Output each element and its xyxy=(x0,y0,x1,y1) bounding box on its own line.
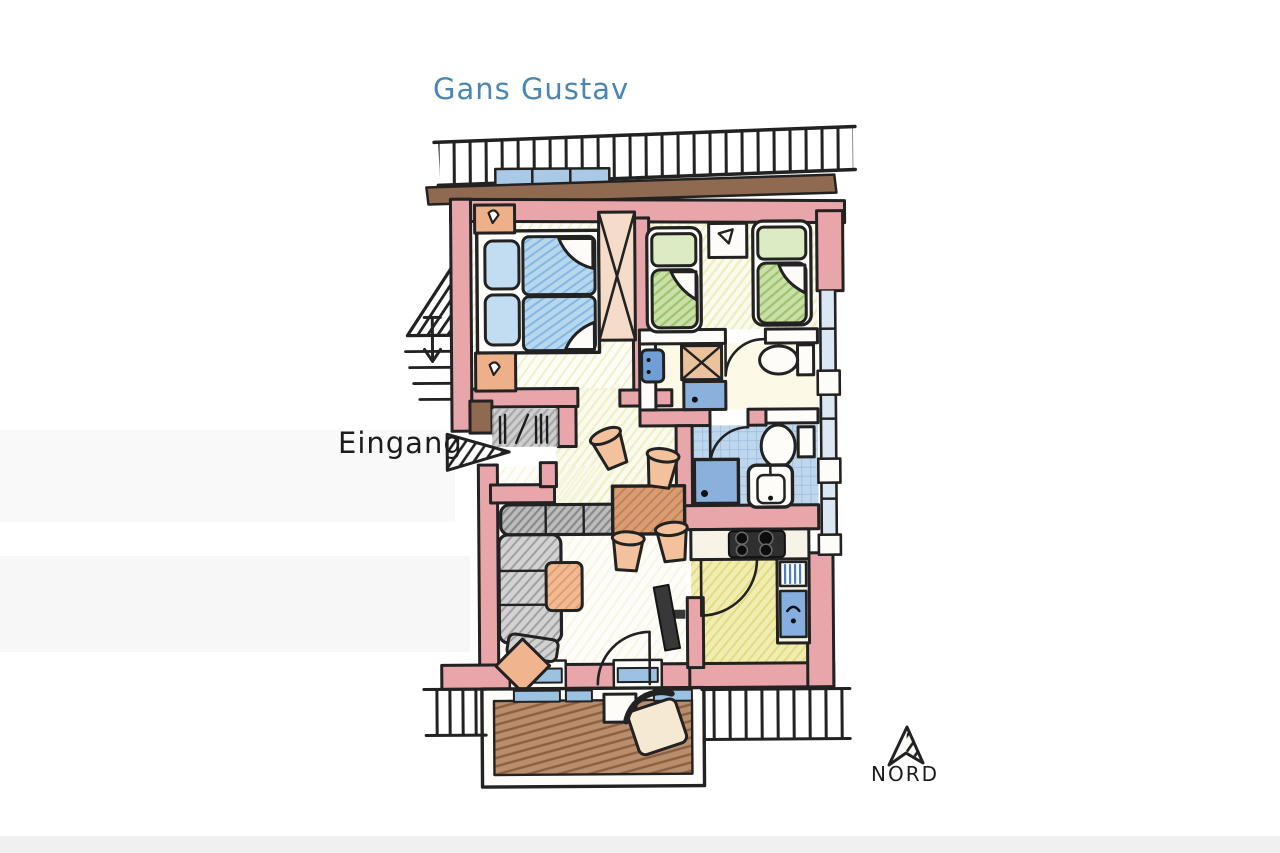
wall-sink xyxy=(642,350,664,382)
balcony xyxy=(482,687,705,787)
north-label: NORD xyxy=(871,762,939,786)
stove-icon xyxy=(729,531,785,557)
stairs-down-arrow-icon xyxy=(424,317,440,361)
dish-rack xyxy=(780,562,806,586)
kitchen-sink xyxy=(780,591,806,637)
nightstand xyxy=(474,205,514,233)
sink xyxy=(748,465,792,507)
pillow xyxy=(485,295,519,345)
nightstand xyxy=(709,223,747,257)
page-title: Gans Gustav xyxy=(433,72,629,106)
nightstand xyxy=(476,353,516,391)
right-wall-windows xyxy=(817,291,841,555)
wardrobe-icon xyxy=(599,212,636,340)
floor-plan-canvas xyxy=(0,0,1280,853)
compass-arrow-icon xyxy=(889,727,923,765)
entrance-label: Eingang xyxy=(338,426,463,460)
closet-wardrobe-rack xyxy=(492,409,558,447)
coffee-table xyxy=(546,562,582,610)
floor-plan-page: Gans Gustav Eingang NORD xyxy=(0,0,1280,853)
toilet xyxy=(759,345,813,375)
single-bed xyxy=(753,221,812,325)
shower xyxy=(694,459,738,503)
roof-railing-bottom-left xyxy=(424,689,486,735)
pillow xyxy=(485,241,519,289)
washing-machine-icon xyxy=(681,345,721,379)
roof-railing-bottom-right xyxy=(702,689,850,740)
single-bed xyxy=(647,228,702,332)
shower xyxy=(684,381,726,409)
wall-brown-step xyxy=(470,401,492,433)
